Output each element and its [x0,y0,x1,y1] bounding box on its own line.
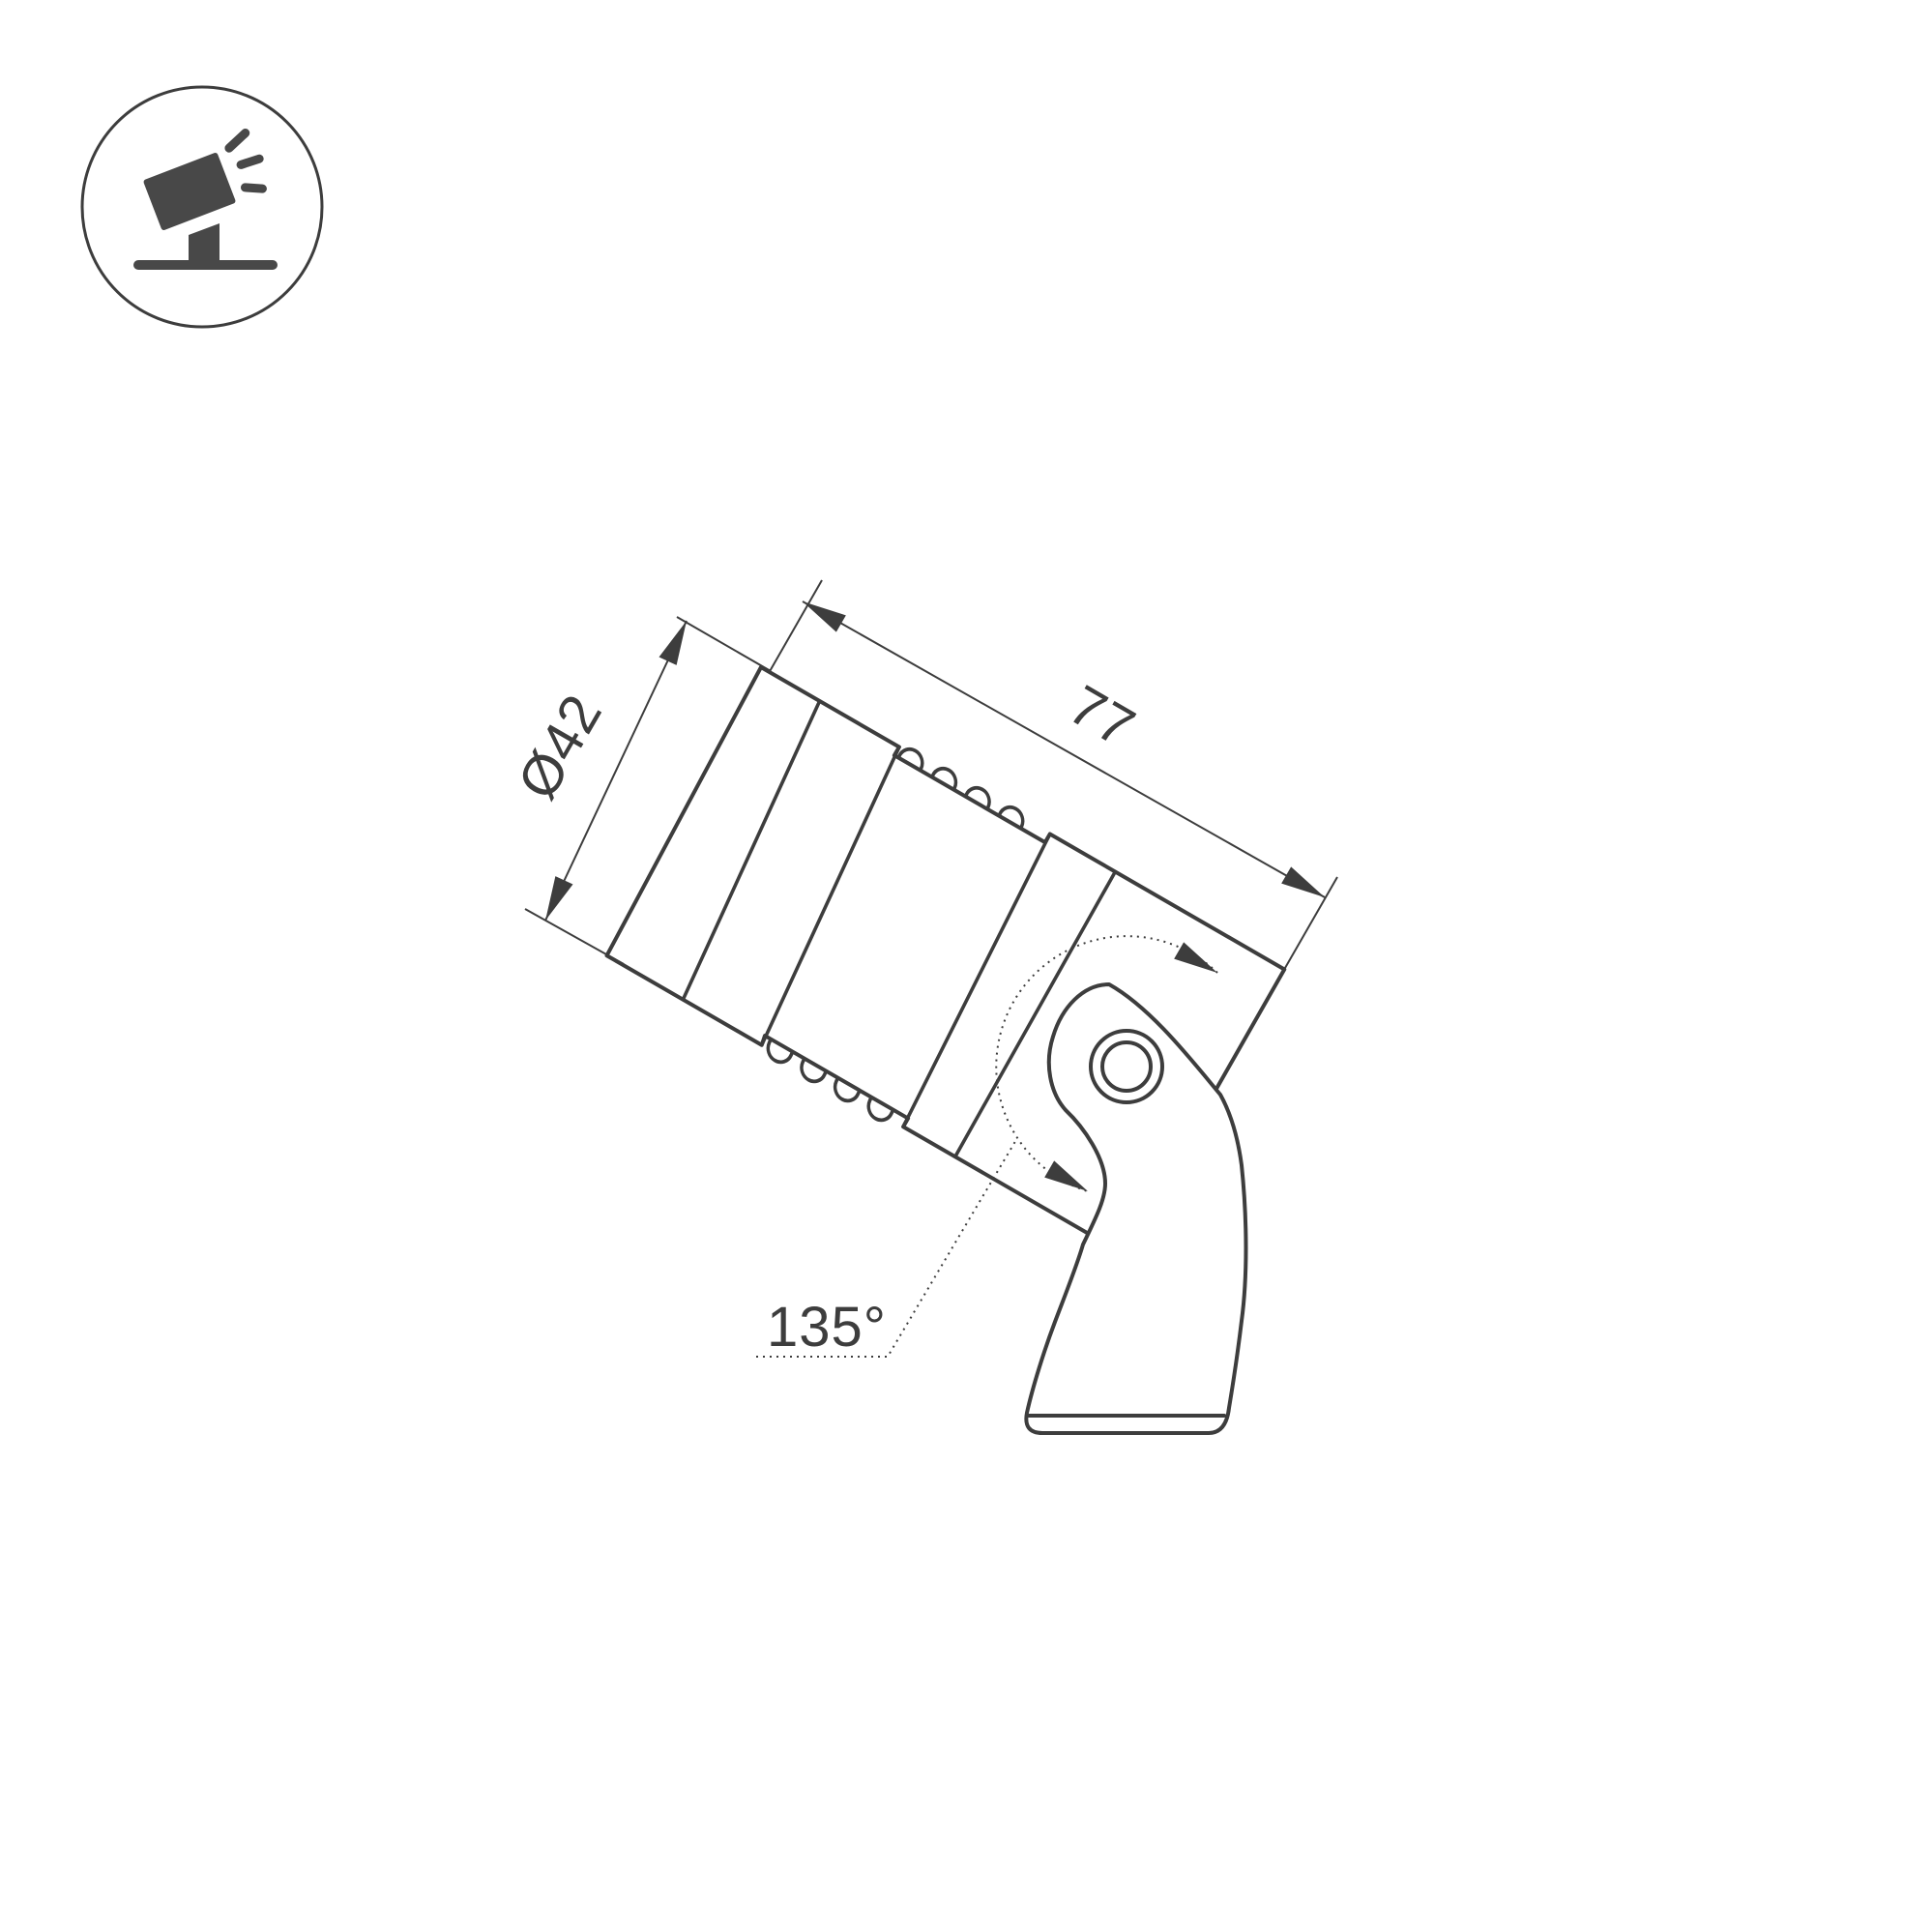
pivot-screw [1102,1042,1151,1091]
arrowhead [798,593,846,631]
tilted-spotlight-icon [82,87,322,327]
icon-spotlight-head [143,152,237,231]
icon-spotlight-stem [189,223,220,261]
icon-light-ray-bottom [241,183,268,193]
icon-ground-bar [133,260,278,270]
spotlight-dimension-drawing: Ø42 77 135° [0,0,1932,1932]
icon-light-ray-middle [235,154,264,171]
icon-light-ray-top [223,127,252,154]
dimension-length-label: 77 [1059,673,1146,760]
extension-line [677,617,771,671]
dimension-diameter-label: Ø42 [506,684,615,809]
arrowhead [1281,866,1330,905]
drawing-page: Ø42 77 135° [0,0,1932,1932]
extension-line [769,580,822,673]
rotation-angle-label: 135° [767,1296,887,1359]
extension-line [525,909,624,964]
